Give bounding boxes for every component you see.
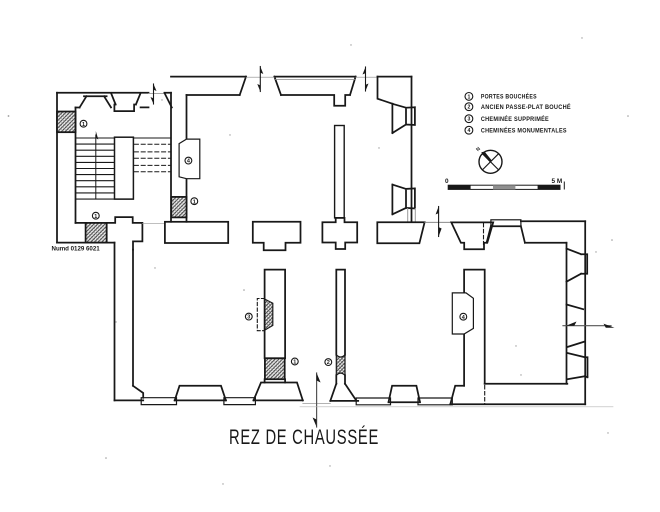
svg-text:4: 4 bbox=[467, 128, 470, 134]
svg-text:2: 2 bbox=[327, 360, 330, 366]
svg-text:CHEMINÉE SUPPRIMÉE: CHEMINÉE SUPPRIMÉE bbox=[481, 114, 549, 123]
svg-text:1: 1 bbox=[94, 214, 97, 220]
svg-text:1: 1 bbox=[293, 360, 296, 366]
svg-text:2: 2 bbox=[467, 105, 470, 111]
svg-text:1: 1 bbox=[82, 122, 85, 128]
svg-text:3: 3 bbox=[247, 315, 250, 321]
svg-text:N: N bbox=[475, 146, 482, 153]
svg-text:PORTES BOUCHÉES: PORTES BOUCHÉES bbox=[481, 92, 537, 101]
svg-text:REZ DE CHAUSSÉE: REZ DE CHAUSSÉE bbox=[229, 426, 379, 449]
svg-text:1: 1 bbox=[193, 199, 196, 205]
svg-text:1: 1 bbox=[467, 94, 470, 100]
svg-text:3: 3 bbox=[467, 117, 470, 123]
svg-text:Numd 0129 6021: Numd 0129 6021 bbox=[52, 246, 101, 253]
svg-text:5 M: 5 M bbox=[552, 178, 563, 185]
svg-text:CHEMINÉES MONUMENTALES: CHEMINÉES MONUMENTALES bbox=[481, 126, 567, 135]
svg-text:ANCIEN PASSE-PLAT BOUCHÉ: ANCIEN PASSE-PLAT BOUCHÉ bbox=[481, 102, 571, 111]
svg-text:0: 0 bbox=[445, 178, 449, 185]
